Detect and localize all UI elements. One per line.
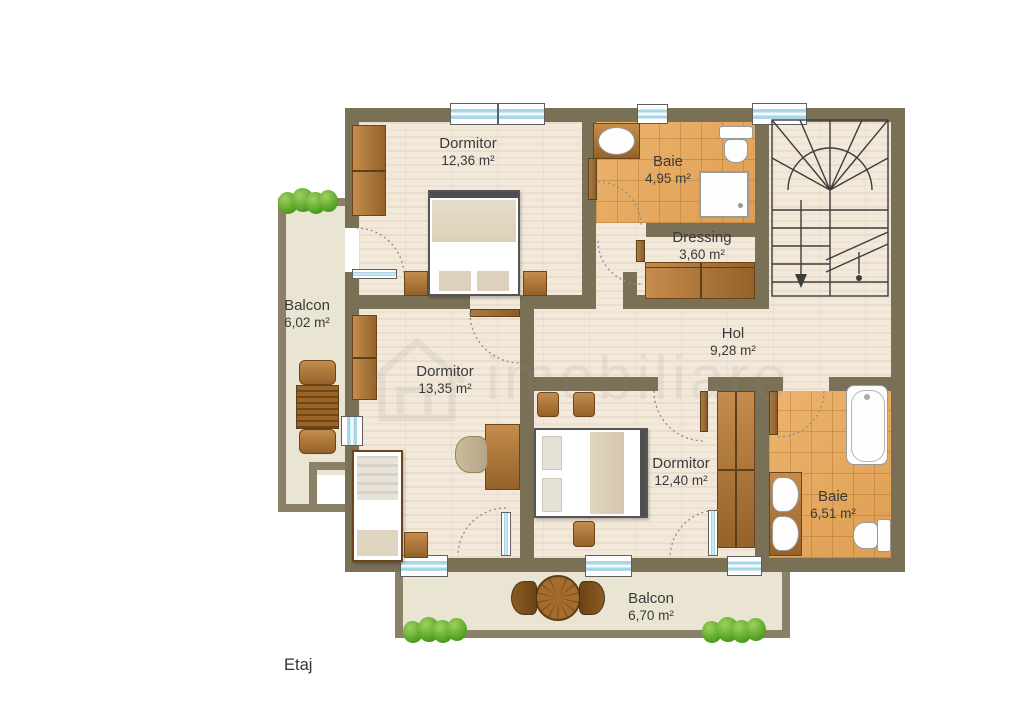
room-label-bedroom-left: Dormitor 13,35 m² xyxy=(416,363,474,397)
window xyxy=(400,555,448,577)
single-bed xyxy=(352,450,403,562)
balcony-wall xyxy=(278,198,286,512)
exterior-wall-east xyxy=(891,108,905,572)
wardrobe xyxy=(352,125,386,216)
nightstand xyxy=(404,271,428,296)
garden-table-slats xyxy=(296,385,339,429)
desk xyxy=(485,424,520,490)
toilet-bowl xyxy=(853,522,878,549)
shower-tray xyxy=(699,171,749,218)
wall-dressing-left xyxy=(623,272,637,295)
wardrobe xyxy=(352,315,377,400)
room-label-bath-top: Baie 4,95 m² xyxy=(645,153,691,187)
toilet-tank xyxy=(877,519,891,552)
room-label-balcony-bottom: Balcon 6,70 m² xyxy=(628,590,674,624)
wall-bath2-top xyxy=(769,377,783,391)
room-label-balcony-left: Balcon 6,02 m² xyxy=(284,297,330,331)
wall-bed3-top xyxy=(708,377,769,391)
room-label-bedroom-top: Dormitor 12,36 m² xyxy=(439,135,497,169)
room-label-bedroom-mid: Dormitor 12,40 m² xyxy=(652,455,710,489)
sink xyxy=(772,516,799,551)
desk-chair xyxy=(455,436,488,473)
balcony-wall xyxy=(782,572,790,638)
window xyxy=(727,556,762,576)
nightstand xyxy=(573,521,595,547)
toilet-tank xyxy=(719,126,753,139)
bathtub xyxy=(846,385,888,465)
window xyxy=(450,103,545,125)
balcony-wall xyxy=(309,462,345,470)
double-bed xyxy=(534,428,648,518)
chair xyxy=(579,581,605,615)
balcony-door-leaf xyxy=(352,269,397,279)
window xyxy=(341,416,363,446)
garden-bench xyxy=(299,360,336,385)
sink xyxy=(598,127,635,155)
nightstand xyxy=(537,392,559,417)
double-bed xyxy=(428,190,520,296)
garden-bench xyxy=(299,429,336,454)
door-leaf xyxy=(588,158,597,200)
balcony-left-floor xyxy=(286,206,345,504)
wardrobe xyxy=(717,391,755,548)
balcony-notch xyxy=(317,475,345,504)
door-leaf xyxy=(769,391,778,435)
wall-bed3-bath2 xyxy=(755,391,769,558)
nightstand xyxy=(523,271,547,296)
chair xyxy=(511,581,537,615)
floor-title: Etaj xyxy=(284,656,312,675)
wall-bath1-stairs xyxy=(755,122,769,309)
toilet-bowl xyxy=(724,139,748,163)
wall-bed2-bed3 xyxy=(520,295,534,558)
nightstand xyxy=(573,392,595,417)
shower-drain xyxy=(738,203,743,208)
window xyxy=(752,103,807,125)
room-label-hallway: Hol 9,28 m² xyxy=(710,325,756,359)
balcony-wall xyxy=(395,572,403,638)
room-label-bath-right: Baie 6,51 m² xyxy=(810,488,856,522)
round-table xyxy=(535,575,581,621)
room-label-dressing: Dressing 3,60 m² xyxy=(672,229,731,263)
dressing-wardrobe xyxy=(645,262,755,299)
wall-bed3-top xyxy=(534,377,658,391)
bush xyxy=(403,615,467,647)
wall-bed1-bottom xyxy=(345,295,470,309)
window xyxy=(637,104,668,124)
door-leaf xyxy=(470,309,520,317)
door-leaf xyxy=(700,391,708,432)
nightstand xyxy=(404,532,428,558)
window xyxy=(585,555,632,577)
door-leaf xyxy=(636,240,645,262)
bush xyxy=(702,615,766,647)
exterior-wall-top xyxy=(345,108,905,122)
sink xyxy=(772,477,799,512)
floor-plan: imobiliare Dormitor 12,36 m² Baie 4,95 m… xyxy=(0,0,1017,720)
bush xyxy=(278,188,338,218)
balcony-door-leaf xyxy=(501,512,511,556)
